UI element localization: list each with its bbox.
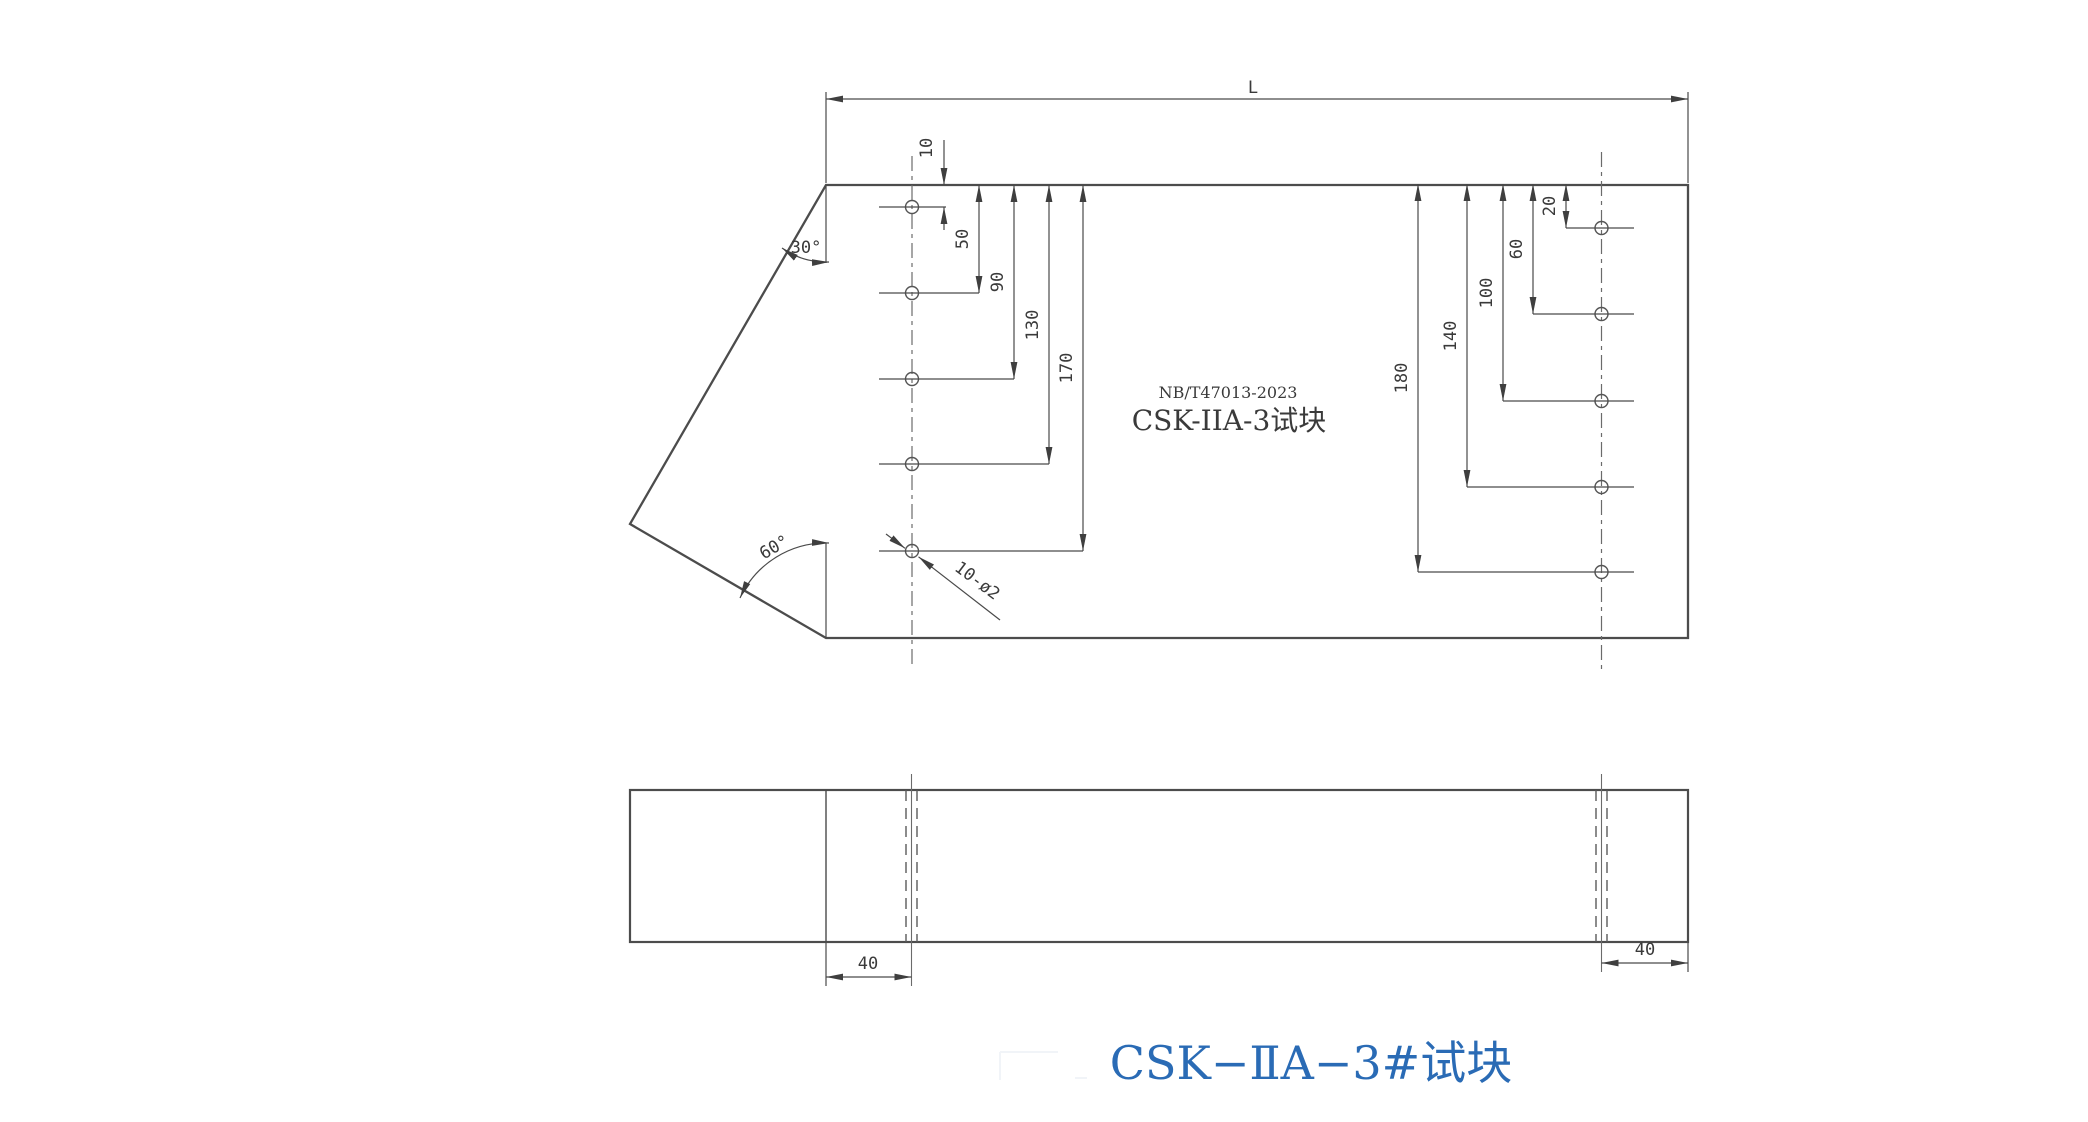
front-view-outline <box>630 790 1688 942</box>
hole-note-label: 10-ø2 <box>951 558 1004 605</box>
dim-label-10: 10 <box>917 138 937 158</box>
length-dimension <box>826 92 1688 183</box>
offset-40-right-label: 40 <box>1635 940 1655 960</box>
dim-label-170: 170 <box>1057 353 1077 384</box>
length-label: L <box>1248 78 1258 98</box>
dim-label-180: 180 <box>1392 363 1412 394</box>
left-depth-dimensions <box>944 140 1083 551</box>
dim-label-130: 130 <box>1023 310 1043 341</box>
angle-60-dimension <box>740 543 829 638</box>
drawing-canvas: L 10 50 90 130 170 <box>0 0 2088 1122</box>
leader-line <box>886 534 905 548</box>
standard-number-text: NB/T47013-2023 <box>1159 383 1298 402</box>
dim-label-50: 50 <box>953 229 973 249</box>
angle-60-label: 60° <box>756 531 793 564</box>
dim-label-140: 140 <box>1441 321 1461 352</box>
dim-label-60: 60 <box>1507 239 1527 259</box>
left-hole-row-lines <box>879 207 1083 551</box>
faint-artifact-marks <box>1000 1052 1087 1080</box>
right-depth-dimensions <box>1418 184 1566 572</box>
block-name-text: CSK-IIA-3试块 <box>1132 404 1327 437</box>
drawing-caption: CSK−ⅡA−3#试块 <box>1110 1036 1512 1090</box>
engineering-drawing: L 10 50 90 130 170 <box>0 0 2088 1122</box>
dim-label-20: 20 <box>1540 196 1560 216</box>
dim-label-90: 90 <box>988 272 1008 292</box>
offset-40-left-label: 40 <box>858 954 878 974</box>
angle-30-label: 30° <box>791 238 822 258</box>
dim-label-100: 100 <box>1477 278 1497 309</box>
faint-artifact <box>1000 1052 1087 1080</box>
